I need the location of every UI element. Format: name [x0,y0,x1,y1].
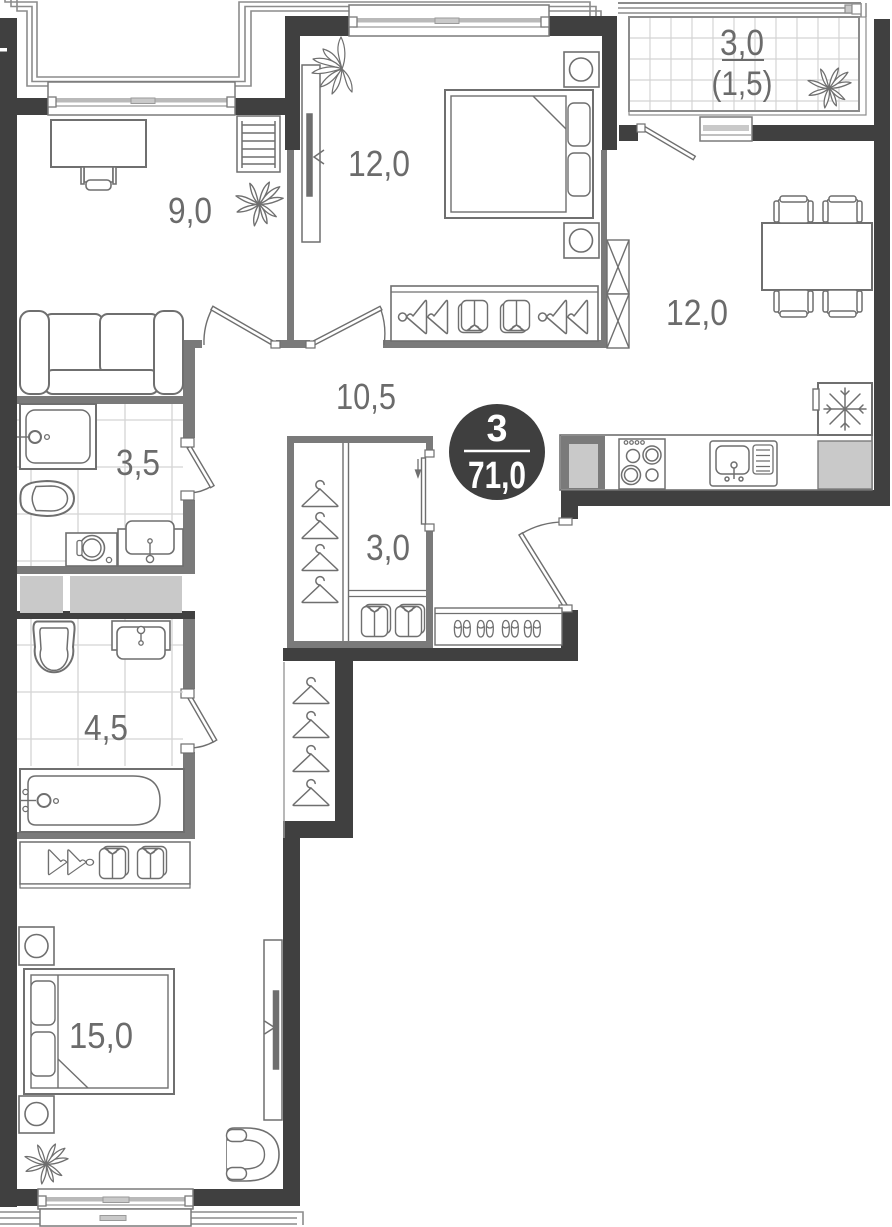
svg-text:3,0: 3,0 [720,22,764,63]
svg-text:71,0: 71,0 [468,455,526,497]
svg-text:3: 3 [487,408,508,450]
svg-text:12,0: 12,0 [666,292,728,333]
svg-text:12,0: 12,0 [348,143,410,184]
svg-text:10,5: 10,5 [336,376,396,417]
svg-text:(1,5): (1,5) [712,65,773,103]
svg-text:3,5: 3,5 [116,442,160,483]
svg-text:15,0: 15,0 [69,1015,133,1056]
svg-text:3,0: 3,0 [366,527,410,568]
svg-text:4,5: 4,5 [84,707,128,748]
svg-text:9,0: 9,0 [168,190,212,231]
